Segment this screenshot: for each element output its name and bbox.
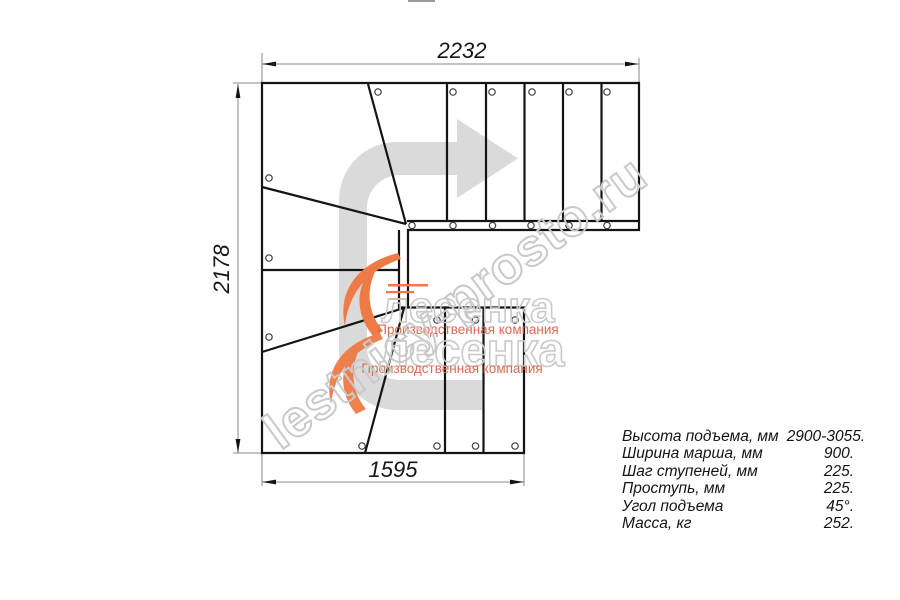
dimension-bottom-label: 1595 — [369, 457, 419, 482]
dimension-left-label: 2178 — [209, 244, 234, 295]
spec-value: 225. — [725, 480, 854, 497]
spec-row: Ширина марша, мм 900. — [622, 445, 854, 462]
spec-label: Масса, кг — [622, 515, 691, 532]
spec-row: Высота подъема, мм 2900-3055. — [622, 428, 854, 445]
spec-label: Шаг ступеней, мм — [622, 463, 758, 480]
spec-row: Проступь, мм 225. — [622, 480, 854, 497]
spec-value: 45°. — [723, 498, 854, 515]
site-watermark: lestnicy-prosto.ru — [254, 145, 658, 461]
spec-label: Ширина марша, мм — [622, 445, 763, 462]
spec-table: Высота подъема, мм 2900-3055. Ширина мар… — [622, 428, 854, 532]
spec-value: 900. — [763, 445, 854, 462]
spec-value: 2900-3055. — [779, 428, 865, 445]
dimension-top-label: 2232 — [437, 38, 487, 63]
spec-value: 225. — [758, 463, 854, 480]
spec-value: 252. — [691, 515, 854, 532]
spec-row: Шаг ступеней, мм 225. — [622, 463, 854, 480]
staircase-drawing-page: 2232 2178 1595 лесенка Производственная … — [0, 0, 900, 600]
spec-row: Масса, кг 252. — [622, 515, 854, 532]
spec-row: Угол подъема 45°. — [622, 498, 854, 515]
spec-label: Угол подъема — [622, 498, 723, 515]
spec-label: Проступь, мм — [622, 480, 725, 497]
spec-label: Высота подъема, мм — [622, 428, 779, 445]
